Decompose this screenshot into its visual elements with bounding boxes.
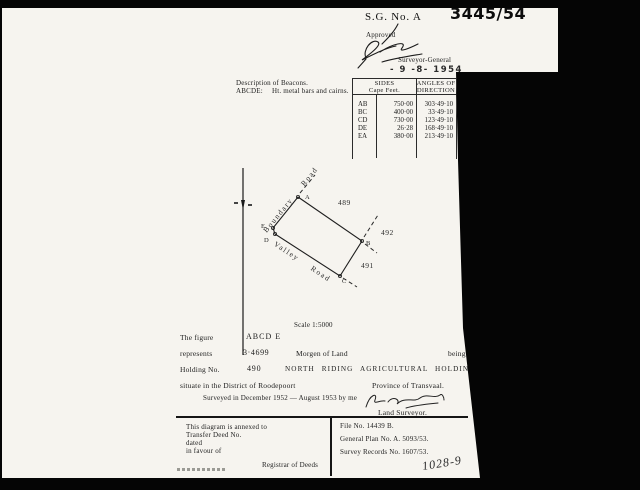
scanned-survey-diagram: { "header": { "sg_label": "S.G. No. A", … xyxy=(0,0,640,490)
plot-diagram xyxy=(228,160,428,360)
sg-number-value: 3445/54 xyxy=(450,4,526,23)
table-row-angle: 303·49·10 xyxy=(417,101,453,109)
meridian-arrowhead xyxy=(241,200,245,210)
table-row-angle: 168·49·10 xyxy=(417,125,453,133)
general-plan-line: General Plan No. A. 5093/53. xyxy=(340,435,429,443)
file-no-line: File No. 14439 B. xyxy=(340,422,394,430)
table-row-side: DE xyxy=(358,125,367,133)
surveyor-general-label: Surveyor-General xyxy=(398,56,451,64)
area-unit: Morgen of Land xyxy=(296,349,348,358)
holding-no-label: Holding No. xyxy=(180,365,220,374)
table-row-length: 750·00 xyxy=(377,101,413,109)
figure-value: ABCD E xyxy=(246,332,281,341)
survey-records-line: Survey Records No. 1607/53. xyxy=(340,448,428,456)
table-row-angle: 33·49·10 xyxy=(417,109,453,117)
holding-no-value: 490 xyxy=(247,364,261,373)
figure-label: The figure xyxy=(180,333,213,342)
registrar-of-deeds-label: Registrar of Deeds xyxy=(262,461,318,469)
area-value: 3·4699 xyxy=(243,348,269,357)
annexed-line-3: dated xyxy=(186,439,202,447)
adjacent-holding-489: 489 xyxy=(338,198,351,207)
handwritten-reference: 1028-9 xyxy=(421,453,463,474)
situate-line: situate in the District of Roodepoort xyxy=(180,381,296,390)
document-page: S.G. No. A 3445/54 Approved Surveyor-Gen… xyxy=(2,8,558,478)
table-row-angle: 213·49·10 xyxy=(417,133,453,141)
table-row-side: AB xyxy=(358,101,367,109)
adjacent-holding-491: 491 xyxy=(361,261,374,270)
table-row-length: 26·28 xyxy=(377,125,413,133)
form-print-smudge xyxy=(177,468,225,471)
sides-angles-table: SIDES Cape Feet. ANGLES OF DIRECTION AB … xyxy=(352,78,457,159)
col-capefeet-header: Cape Feet. xyxy=(353,87,416,94)
col-angles-header: ANGLES OF xyxy=(416,80,456,87)
scale-label: Scale 1:5000 xyxy=(294,321,333,329)
holding-name: NORTH RIDING AGRICULTURAL HOLDINGS xyxy=(285,365,481,373)
table-row-angle: 123·49·10 xyxy=(417,117,453,125)
beacons-description: Ht. metal bars and cairns. xyxy=(272,87,349,95)
table-row-side: BC xyxy=(358,109,367,117)
being-label: being xyxy=(448,349,466,358)
annexed-line-1: This diagram is annexed to xyxy=(186,423,267,431)
annexed-line-2: Transfer Deed No. xyxy=(186,431,241,439)
table-header-rule xyxy=(353,94,456,95)
table-row-side: EA xyxy=(358,133,367,141)
footer-divider xyxy=(330,418,332,476)
col-sides-header: SIDES xyxy=(353,80,416,87)
footer-top-rule xyxy=(176,416,468,418)
northeast-boundary-dash xyxy=(364,215,378,237)
meridian-tick-left xyxy=(234,202,238,204)
surveyed-line: Surveyed in December 1952 — August 1953 … xyxy=(203,394,357,402)
beacons-figure-letters: ABCDE: xyxy=(236,87,263,95)
meridian-tick-right xyxy=(248,204,252,206)
approval-date-stamp: - 9 -8- 1954 xyxy=(390,65,463,75)
represents-label: represents xyxy=(180,349,212,358)
annexed-line-4: in favour of xyxy=(186,447,221,455)
col-direction-header: DIRECTION xyxy=(416,87,456,94)
table-row-side: CD xyxy=(358,117,367,125)
beacon-label-a: A xyxy=(305,194,310,201)
table-row-length: 400·00 xyxy=(377,109,413,117)
beacon-label-b: B xyxy=(366,240,371,247)
beacons-title: Description of Beacons. xyxy=(236,79,308,87)
table-row-length: 730·00 xyxy=(377,117,413,125)
table-row-length: 380·00 xyxy=(377,133,413,141)
adjacent-holding-492: 492 xyxy=(381,228,394,237)
